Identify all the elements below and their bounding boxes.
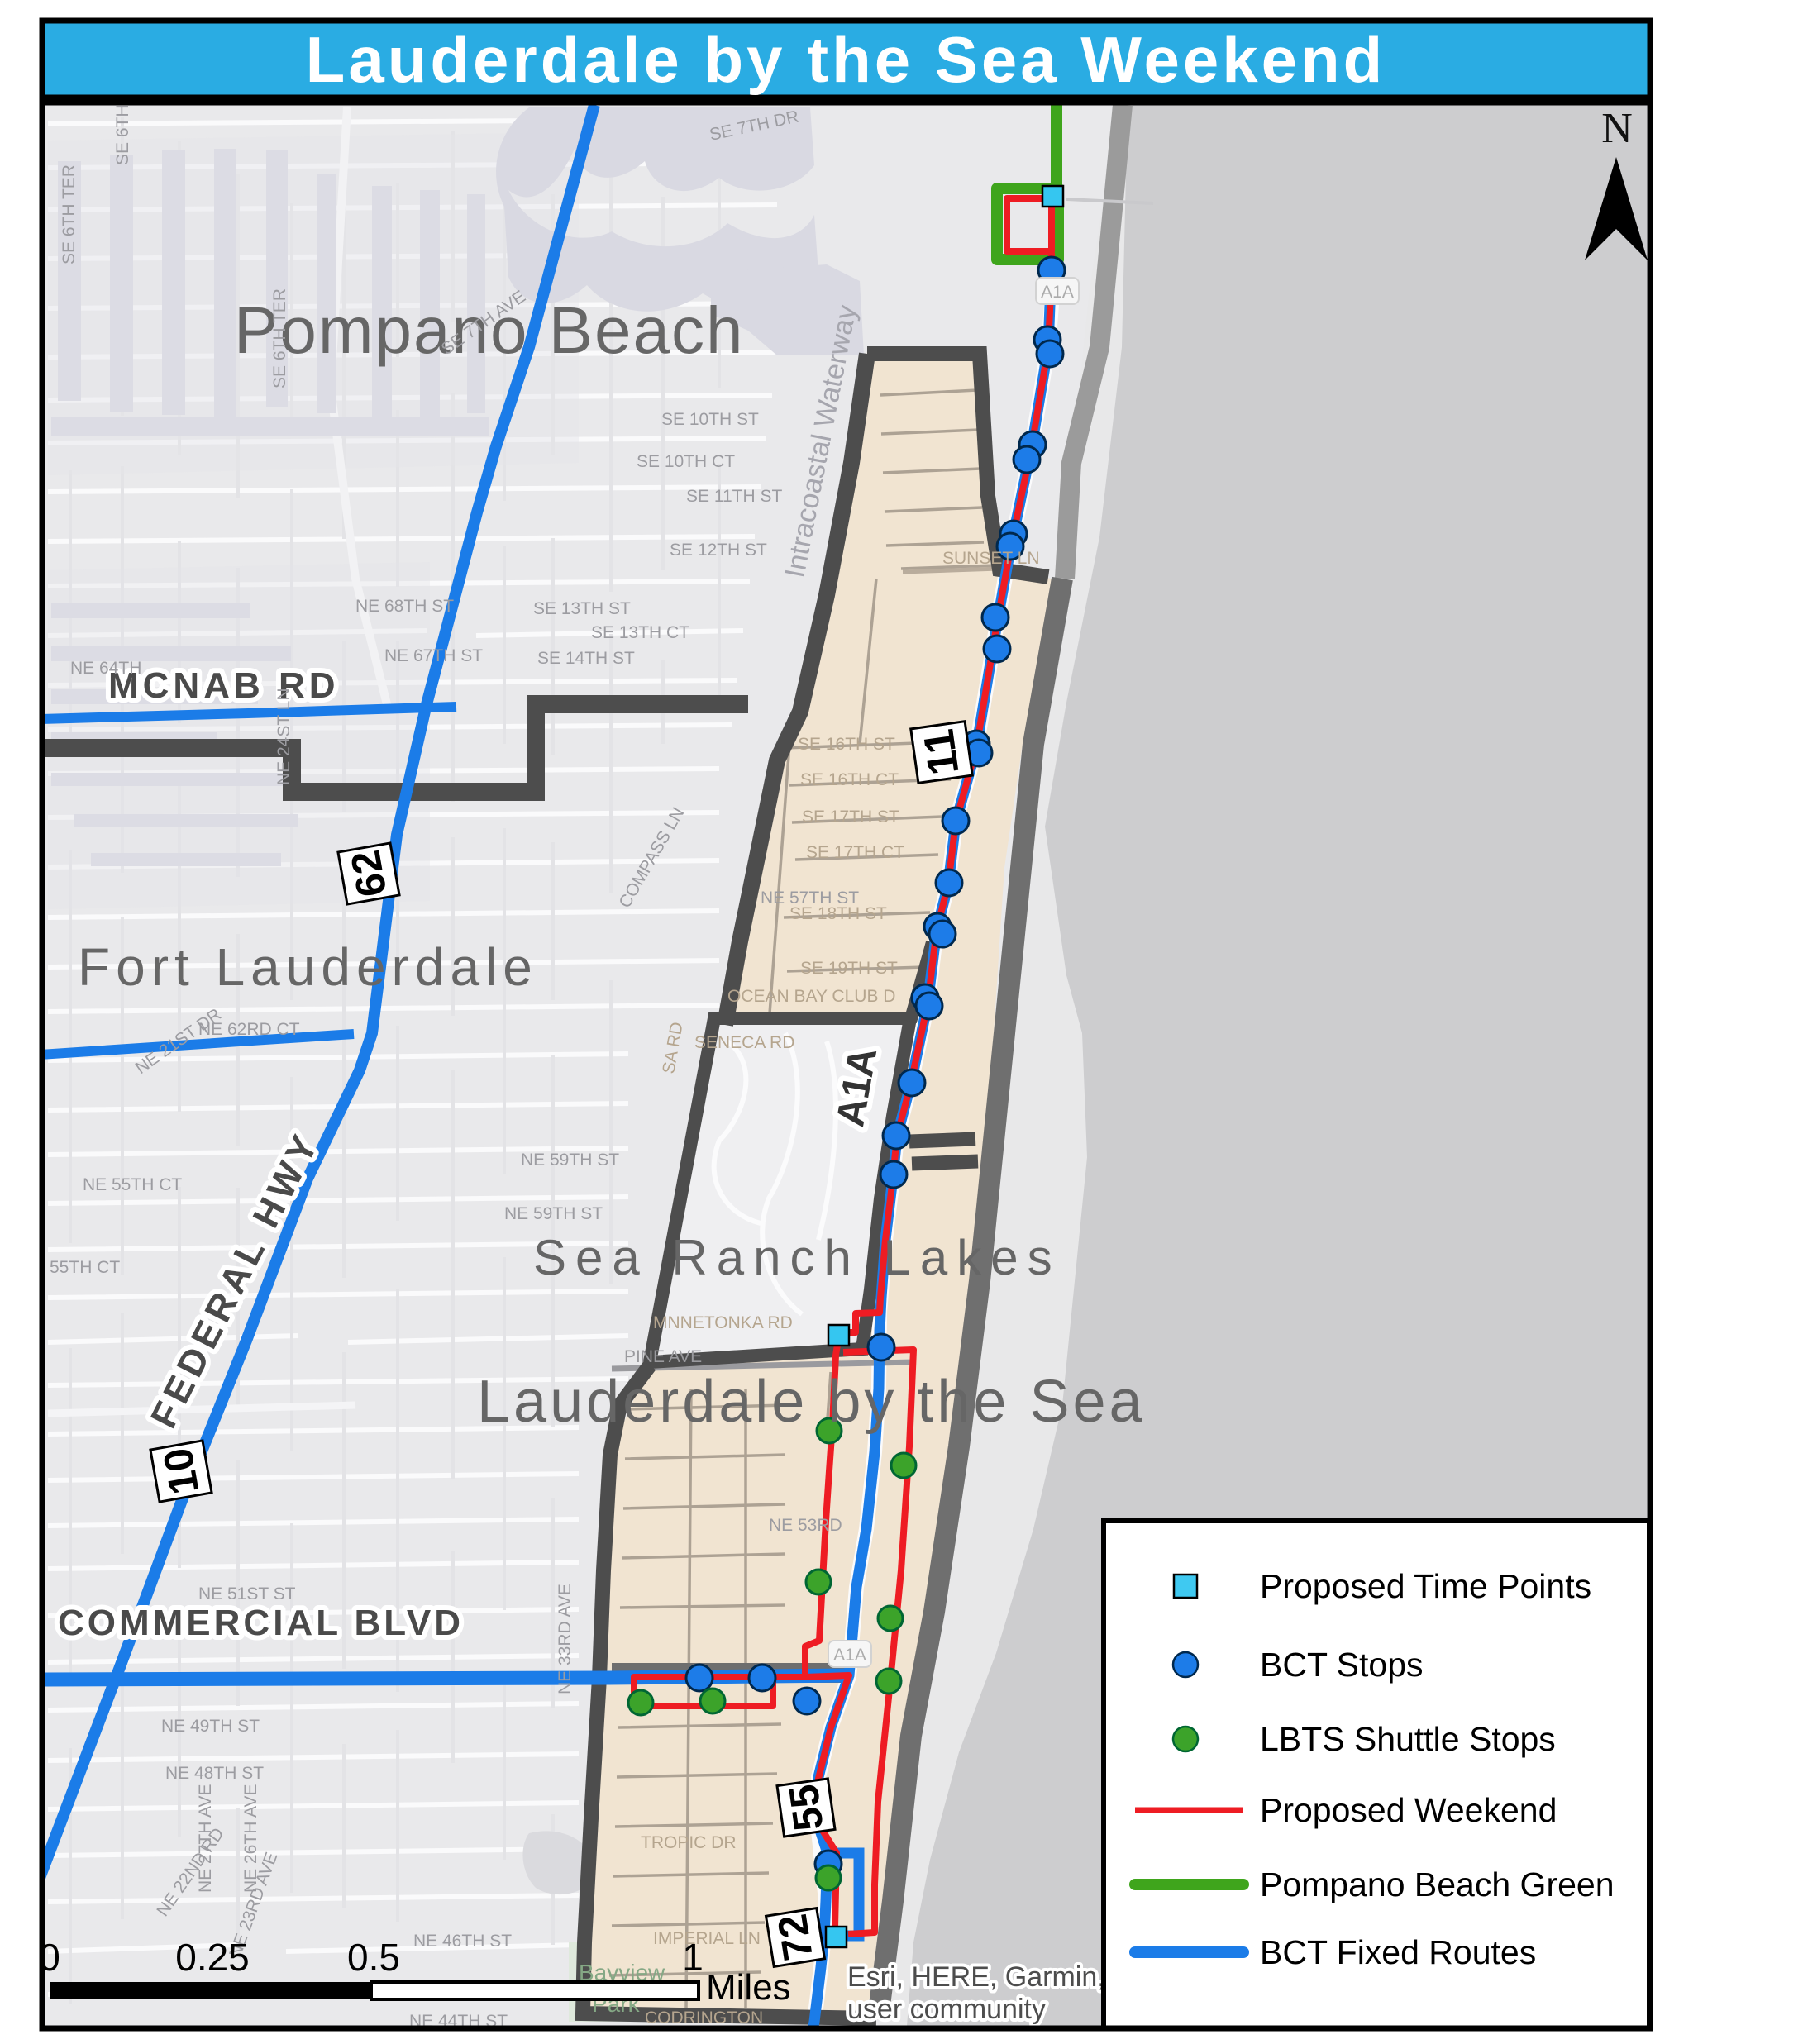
- svg-text:Proposed Weekend: Proposed Weekend: [1260, 1791, 1557, 1829]
- svg-text:72: 72: [769, 1911, 822, 1964]
- svg-text:10: 10: [155, 1445, 208, 1498]
- svg-text:SE 16TH CT: SE 16TH CT: [800, 770, 899, 789]
- svg-text:NE 68TH ST: NE 68TH ST: [355, 597, 454, 616]
- svg-text:TROPIC DR: TROPIC DR: [641, 1833, 737, 1852]
- svg-text:Proposed Time Points: Proposed Time Points: [1260, 1567, 1591, 1605]
- svg-text:SE 19TH ST: SE 19TH ST: [800, 959, 898, 978]
- svg-text:NE 46TH ST: NE 46TH ST: [413, 1932, 512, 1951]
- svg-text:0.5: 0.5: [347, 1936, 400, 1979]
- svg-text:11: 11: [914, 727, 968, 779]
- svg-text:IMPERIAL LN: IMPERIAL LN: [653, 1929, 761, 1948]
- svg-text:NE 55TH CT: NE 55TH CT: [83, 1175, 182, 1194]
- svg-text:SE 6TH: SE 6TH: [113, 104, 132, 165]
- svg-text:OCEAN BAY CLUB D: OCEAN BAY CLUB D: [727, 987, 895, 1006]
- svg-text:LBTS Shuttle Stops: LBTS Shuttle Stops: [1260, 1720, 1556, 1758]
- svg-text:SUNSET LN: SUNSET LN: [942, 549, 1039, 568]
- svg-text:Fort Lauderdale: Fort Lauderdale: [78, 937, 538, 997]
- svg-text:A1A: A1A: [1041, 283, 1074, 302]
- svg-text:NE 53RD: NE 53RD: [769, 1516, 842, 1535]
- svg-text:COMMERCIAL BLVD: COMMERCIAL BLVD: [58, 1603, 464, 1643]
- svg-text:SE 6TH TER: SE 6TH TER: [60, 164, 79, 264]
- svg-text:NE 64TH: NE 64TH: [70, 659, 141, 678]
- svg-text:SE 13TH CT: SE 13TH CT: [591, 623, 689, 642]
- svg-text:SE 6TH TER: SE 6TH TER: [270, 288, 289, 388]
- svg-text:N: N: [1601, 105, 1633, 152]
- svg-text:MCNAB RD: MCNAB RD: [108, 665, 340, 706]
- svg-text:NE 51ST ST: NE 51ST ST: [198, 1584, 296, 1603]
- svg-text:NE 67TH ST: NE 67TH ST: [384, 646, 483, 665]
- svg-text:Sea Ranch Lakes: Sea Ranch Lakes: [533, 1230, 1061, 1285]
- svg-text:SE 12TH ST: SE 12TH ST: [670, 541, 767, 560]
- svg-text:0.25: 0.25: [175, 1936, 250, 1979]
- svg-text:A1A: A1A: [833, 1646, 866, 1665]
- svg-text:NE 59TH ST: NE 59TH ST: [504, 1204, 603, 1223]
- svg-text:BCT Fixed Routes: BCT Fixed Routes: [1260, 1933, 1536, 1971]
- svg-text:MNNETONKA RD: MNNETONKA RD: [653, 1313, 793, 1332]
- svg-text:NE 24ST LN: NE 24ST LN: [274, 688, 293, 786]
- svg-text:Miles: Miles: [706, 1967, 791, 2008]
- svg-text:PINE AVE: PINE AVE: [624, 1347, 702, 1366]
- svg-text:SE 10TH ST: SE 10TH ST: [661, 410, 759, 429]
- svg-text:user community: user community: [847, 1994, 1046, 2025]
- svg-text:SE 17TH CT: SE 17TH CT: [806, 843, 904, 862]
- svg-text:NE 48TH ST: NE 48TH ST: [165, 1764, 264, 1783]
- svg-text:SENECA RD: SENECA RD: [694, 1033, 794, 1052]
- svg-text:1: 1: [682, 1936, 704, 1979]
- svg-text:Esri, HERE, Garmin,: Esri, HERE, Garmin,: [847, 1961, 1105, 1993]
- svg-text:SE 18TH ST: SE 18TH ST: [789, 904, 887, 923]
- svg-text:NE 33RD AVE: NE 33RD AVE: [556, 1584, 575, 1694]
- svg-text:CODRINGTON: CODRINGTON: [645, 2008, 763, 2027]
- svg-text:55: 55: [780, 1782, 832, 1834]
- svg-text:SE 14TH ST: SE 14TH ST: [537, 649, 635, 668]
- svg-text:Lauderdale by the Sea: Lauderdale by the Sea: [477, 1369, 1146, 1435]
- svg-text:SE 16TH ST: SE 16TH ST: [798, 735, 895, 754]
- svg-text:SE 13TH ST: SE 13TH ST: [533, 599, 631, 618]
- svg-text:NE 59TH ST: NE 59TH ST: [521, 1151, 619, 1170]
- svg-text:62: 62: [342, 847, 396, 901]
- svg-text:SE 11TH ST: SE 11TH ST: [686, 487, 782, 506]
- svg-text:NE 49TH ST: NE 49TH ST: [161, 1717, 260, 1736]
- svg-text:SE 10TH CT: SE 10TH CT: [637, 452, 735, 471]
- svg-text:BCT Stops: BCT Stops: [1260, 1646, 1424, 1684]
- svg-text:SE 17TH ST: SE 17TH ST: [802, 808, 899, 827]
- svg-text:Pompano Beach Green: Pompano Beach Green: [1260, 1865, 1615, 1903]
- svg-text:Lauderdale by the Sea Weekend: Lauderdale by the Sea Weekend: [306, 23, 1386, 96]
